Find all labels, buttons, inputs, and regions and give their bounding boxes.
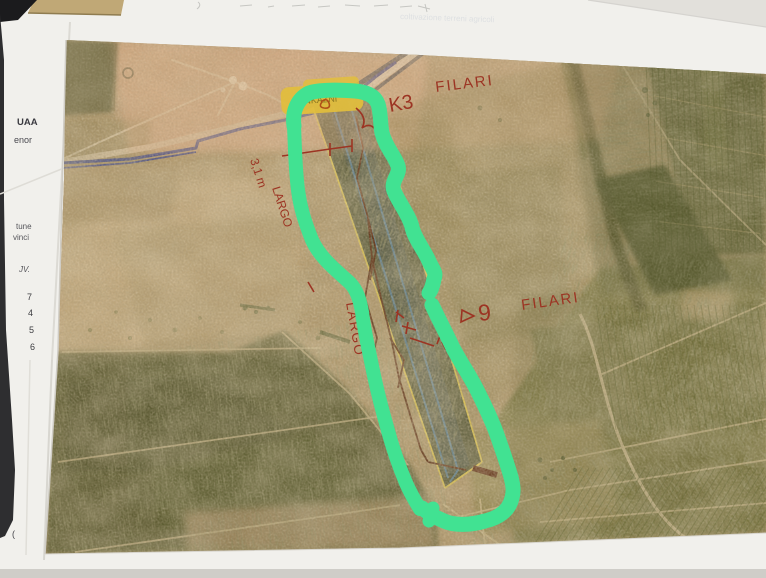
svg-text:UAA: UAA [17,117,38,128]
svg-text:6: 6 [30,342,35,352]
svg-text:JV.: JV. [18,265,30,274]
svg-text:K3: K3 [387,91,415,117]
svg-text:9: 9 [477,299,492,326]
svg-text:4: 4 [28,308,33,318]
svg-text:(: ( [12,529,15,539]
svg-text:tune: tune [16,222,32,231]
svg-text:5: 5 [29,325,34,335]
svg-text:enor: enor [14,135,32,145]
svg-text:vinci: vinci [13,233,29,242]
svg-text:7: 7 [27,292,32,302]
